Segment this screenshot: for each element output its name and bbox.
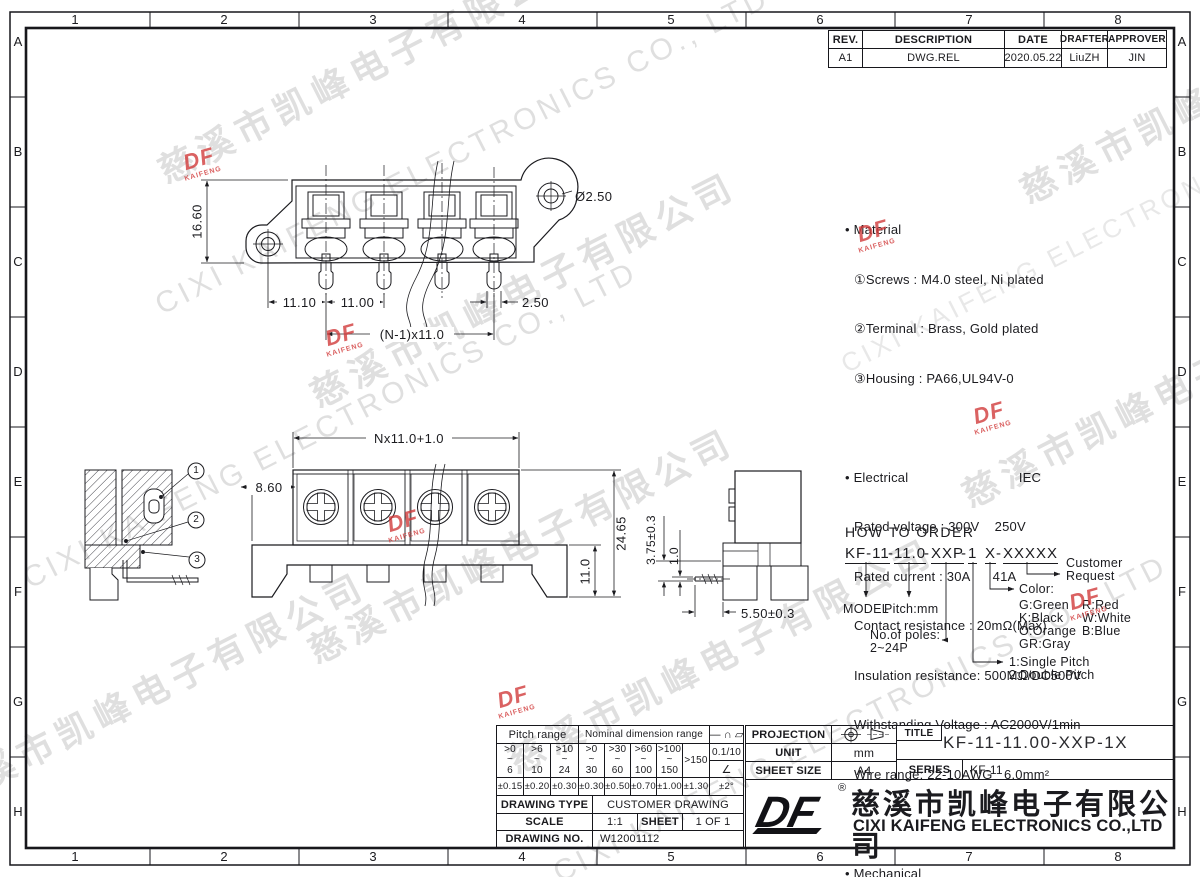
order-code-custom: XXXXX (1003, 545, 1058, 564)
order-customer-1: Customer (1066, 556, 1123, 570)
unit-label: UNIT (745, 743, 832, 762)
tol-angle-symbol: ∠ (709, 760, 744, 778)
rev-header: DESCRIPTION (862, 30, 1005, 49)
zone-letter: F (7, 584, 29, 600)
order-color-label: Color: (1019, 582, 1054, 596)
zone-number: 8 (1107, 12, 1129, 28)
dim-span: (N-1)x11.0 (370, 327, 454, 342)
range-bottom: 10 (531, 766, 543, 777)
dim-hole-dia: Ø2.50 (575, 189, 612, 204)
rev-value: JIN (1107, 48, 1167, 68)
order-code-sep: - (996, 545, 1002, 562)
dim-pin-width: 2.50 (522, 295, 549, 310)
order-double-pitch: 2:Double Pitch (1009, 668, 1095, 682)
range-bottom: 150 (661, 766, 678, 777)
range-bottom: 60 (612, 766, 624, 777)
note-line: ①Screws : M4.0 steel, Ni plated (845, 272, 1180, 289)
order-color-option: B:Blue (1082, 624, 1121, 638)
drawing-type-value: CUSTOMER DRAWING (592, 795, 744, 814)
range-bottom: 30 (586, 766, 598, 777)
tol-value: ±0.70 (630, 777, 657, 796)
tol-value: ±0.30 (578, 777, 605, 796)
zone-letter: E (7, 474, 29, 490)
rev-value: A1 (828, 48, 863, 68)
drawing-no-label: DRAWING NO. (496, 830, 593, 848)
tol-flatness: 0.1/10 (709, 743, 744, 761)
tol-pitch-header: Pitch range (496, 725, 579, 744)
note-line: • Electrical IEC (845, 470, 1180, 487)
sheet-label: SHEET (637, 813, 683, 831)
dim-base-height: 11.0 (578, 547, 593, 597)
dim-top-height: 16.60 (190, 192, 205, 252)
range-bottom: 100 (635, 766, 652, 777)
scale-label: SCALE (496, 813, 593, 831)
zone-letter: C (7, 254, 29, 270)
zone-number: 1 (64, 849, 86, 865)
callout-1: 1 (189, 464, 203, 478)
company-name-en: CIXI KAIFENG ELECTRONICS CO.,LTD (853, 817, 1163, 836)
tol-symbols: — ∩ ▱ (709, 725, 744, 744)
section-view (85, 463, 205, 600)
tol-value: ±1.00 (656, 777, 683, 796)
scale-value: 1:1 (592, 813, 638, 831)
note-line: Rated current : 30A 41A (845, 569, 1180, 586)
order-code-pitchtype: 1 (968, 545, 977, 564)
dim-pitch-first: 11.10 (277, 295, 322, 310)
drawing-no-value: W12001112 (592, 830, 744, 848)
zone-letter: G (7, 694, 29, 710)
rev-header: DRAFTER (1061, 30, 1108, 49)
rev-value: LiuZH (1061, 48, 1108, 68)
tol-range: >30~60 (604, 743, 631, 778)
tol-range: >0~6 (496, 743, 524, 778)
tol-over-range: >150 (682, 743, 710, 778)
tol-value: ±0.50 (604, 777, 631, 796)
zone-number: 7 (958, 12, 980, 28)
tol-range: >6~10 (523, 743, 551, 778)
zone-letter: B (7, 144, 29, 160)
unit-value: mm (831, 743, 897, 762)
dim-pitch: 11.00 (335, 295, 380, 310)
order-pitch-label: Pitch:mm (884, 602, 939, 616)
tol-range: >0~30 (578, 743, 605, 778)
dim-pin-thickness: 1.0 (667, 536, 681, 576)
order-title: HOW TO ORDER (845, 524, 975, 540)
projection-symbol-cell (831, 725, 897, 744)
order-poles-value: 2~24P (870, 641, 908, 655)
drawing-sheet: 慈溪市凯峰电子有限公司 CIXI KAIFENG ELECTRONICS CO.… (0, 0, 1200, 877)
zone-letter: A (7, 34, 29, 50)
zone-number: 3 (362, 12, 384, 28)
tol-range: >60~100 (630, 743, 657, 778)
note-line: ③Housing : PA66,UL94V-0 (845, 371, 1180, 388)
rev-header: APPROVER (1107, 30, 1167, 49)
tol-range: >100~150 (656, 743, 683, 778)
sheet-value: 1 OF 1 (682, 813, 744, 831)
order-color-option: GR:Gray (1019, 637, 1070, 651)
tol-value: ±0.15 (496, 777, 524, 796)
dim-pin-offset: 3.75±0.3 (644, 507, 658, 573)
range-bottom: 24 (559, 766, 571, 777)
series-label: SERIES (896, 759, 963, 780)
zone-number: 2 (213, 849, 235, 865)
zone-number: 6 (809, 12, 831, 28)
zone-letter: A (1171, 34, 1193, 50)
tol-value: ±1.30 (682, 777, 710, 796)
sheet-size-label: SHEET SIZE (745, 761, 832, 780)
zone-letter: B (1171, 144, 1193, 160)
order-single-pitch: 1:Single Pitch (1009, 655, 1090, 669)
arc-symbol: ∩ (724, 729, 732, 741)
title-label: TITLE (896, 725, 942, 741)
order-code-pitch: 11.0 (894, 545, 926, 564)
note-line: ②Terminal : Brass, Gold plated (845, 321, 1180, 338)
tol-range: >10~24 (550, 743, 579, 778)
rev-value: DWG.REL (862, 48, 1005, 68)
zone-number: 3 (362, 849, 384, 865)
note-line: • Mechanical (845, 866, 1180, 877)
order-model-label: MODEL (843, 602, 889, 616)
zone-number: 6 (809, 849, 831, 865)
series-value: KF-11 (962, 759, 1175, 780)
line-symbol: — (710, 729, 721, 741)
order-code-sep: - (961, 545, 967, 562)
zone-letter: D (7, 364, 29, 380)
zone-number: 4 (511, 849, 533, 865)
tol-value: ±0.20 (523, 777, 551, 796)
top-view (201, 158, 578, 340)
projection-label: PROJECTION (745, 725, 832, 744)
dim-pin-length: 5.50±0.3 (741, 606, 795, 621)
dim-front-width: Nx11.0+1.0 (366, 431, 452, 446)
rev-header: REV. (828, 30, 863, 49)
first-angle-projection-icon (833, 726, 895, 743)
zone-number: 5 (660, 849, 682, 865)
order-color-option: O:Orange (1019, 624, 1076, 638)
order-poles-label: No.of poles: (870, 628, 940, 642)
rev-header: DATE (1004, 30, 1062, 49)
zone-number: 4 (511, 12, 533, 28)
zone-letter: H (7, 804, 29, 820)
order-code-color: X (985, 545, 996, 564)
zone-number: 2 (213, 12, 235, 28)
drawing-type-label: DRAWING TYPE (496, 795, 593, 814)
zone-number: 5 (660, 12, 682, 28)
callout-2: 2 (189, 513, 203, 527)
tol-value: ±2° (709, 777, 744, 796)
zone-number: 1 (64, 12, 86, 28)
tol-nominal-header: Nominal dimension range (578, 725, 710, 744)
callout-3: 3 (190, 553, 204, 567)
registered-mark: ® (838, 782, 846, 794)
order-code-sep: - (924, 545, 930, 562)
range-bottom: 6 (507, 766, 513, 777)
sheet-size-value: A4 (831, 761, 897, 780)
parallelogram-symbol: ▱ (735, 728, 744, 741)
rev-value: 2020.05.22 (1004, 48, 1062, 68)
order-code-model: KF-11 (845, 545, 890, 564)
tol-value: ±0.30 (550, 777, 579, 796)
order-code-poles: XXP (931, 545, 964, 564)
dim-front-offset: 8.60 (247, 480, 291, 495)
dim-total-height: 24.65 (614, 504, 629, 564)
